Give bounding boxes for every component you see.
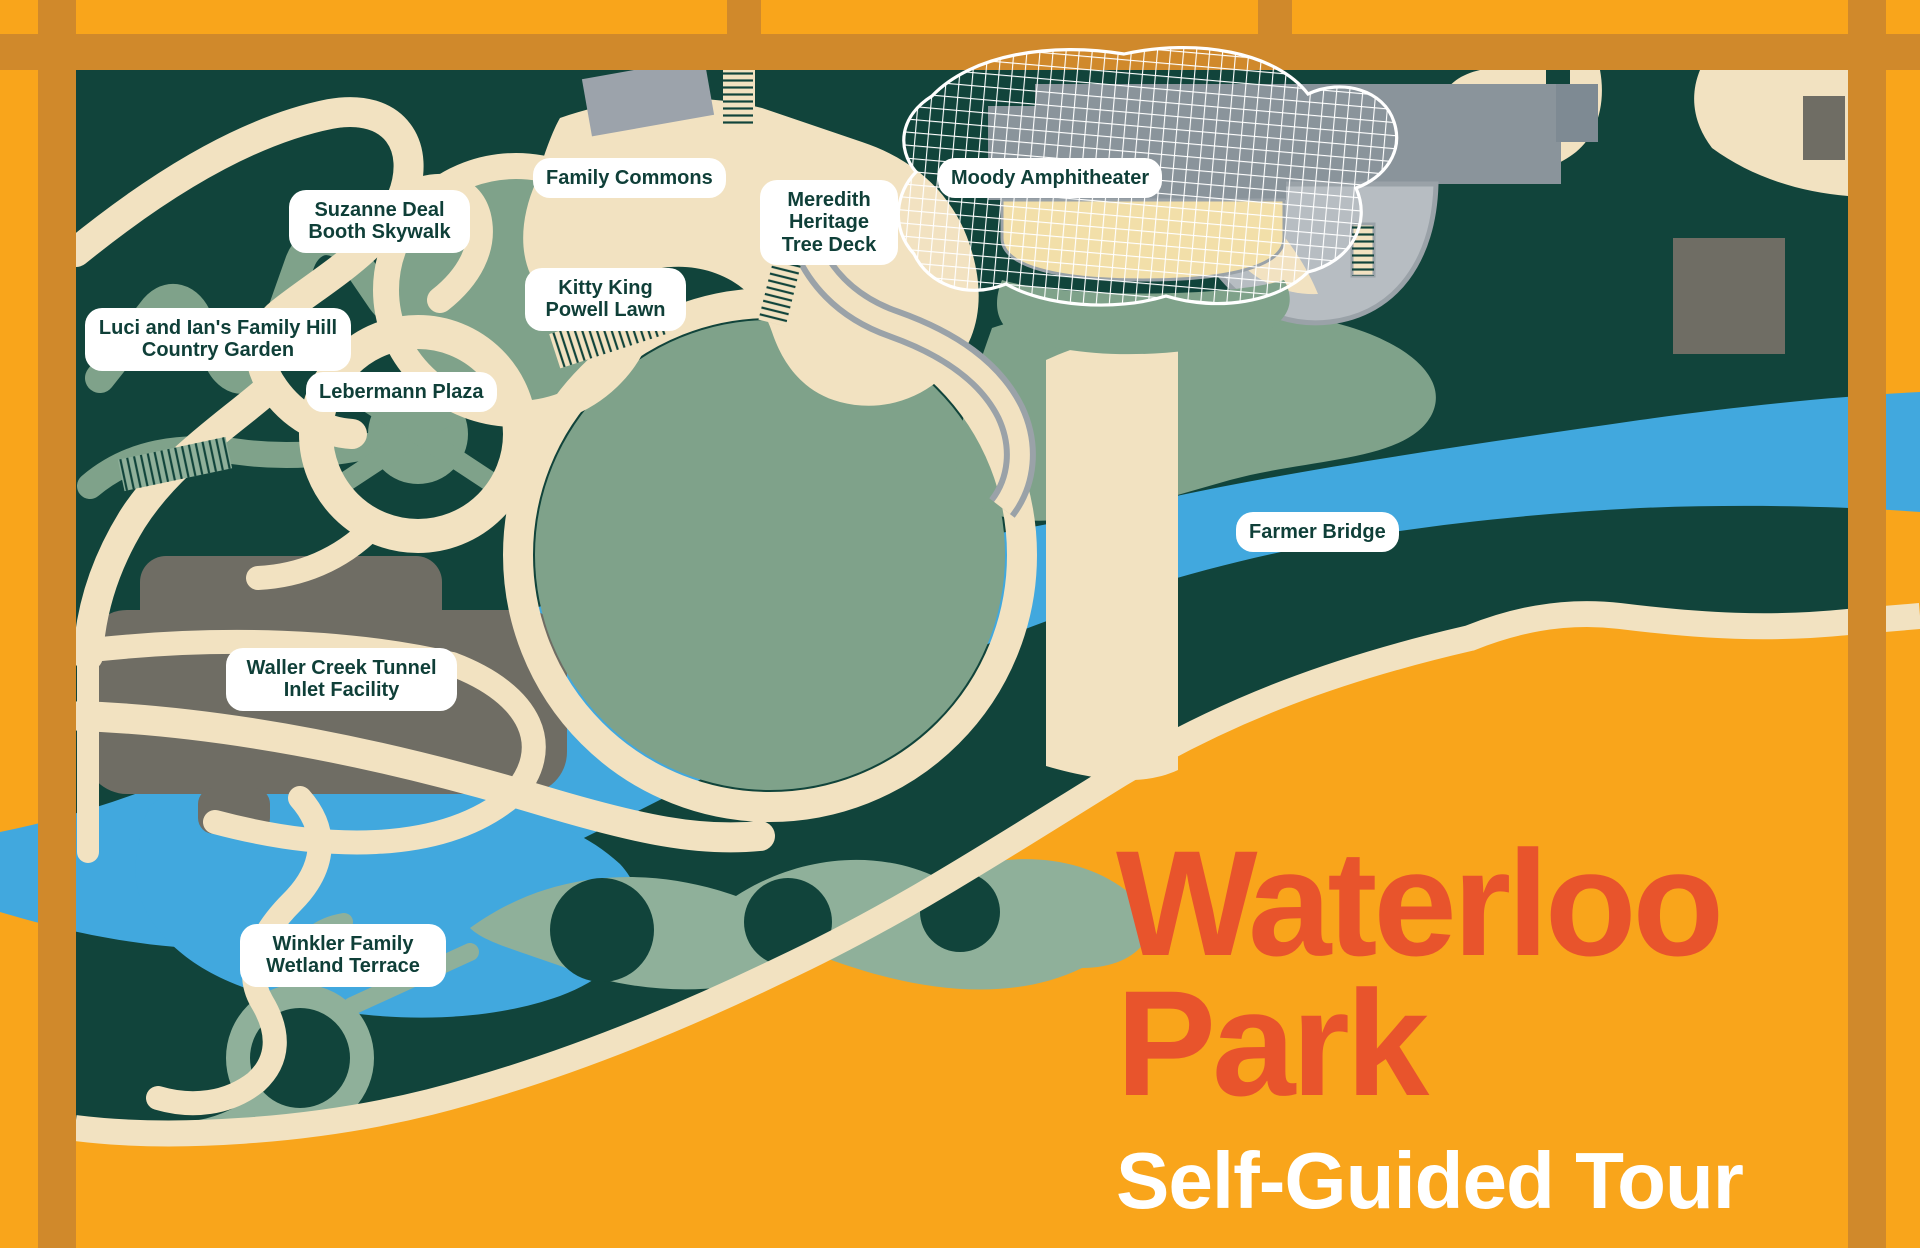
poster-subtitle: Self-Guided Tour xyxy=(1116,1141,1743,1221)
west-street xyxy=(38,0,76,1248)
north-cross-street-a xyxy=(727,0,761,34)
map-label-lebermann-plaza: Lebermann Plaza xyxy=(306,372,497,412)
map-label-suzanne-deal-booth-skywalk: Suzanne Deal Booth Skywalk xyxy=(289,190,470,253)
east-street xyxy=(1848,0,1886,1248)
poster-title-block: WaterlooPark Self-Guided Tour xyxy=(1116,834,1743,1221)
map-label-family-commons: Family Commons xyxy=(533,158,726,198)
north-street xyxy=(0,34,1920,70)
waterloo-park-map-poster: Suzanne Deal Booth Skywalk Family Common… xyxy=(0,0,1920,1248)
north-cross-street-b xyxy=(1258,0,1292,34)
map-label-farmer-bridge: Farmer Bridge xyxy=(1236,512,1399,552)
map-label-meredith-heritage-tree-deck: Meredith Heritage Tree Deck xyxy=(760,180,898,265)
building-far-northeast xyxy=(1803,96,1845,160)
building-northeast xyxy=(1556,84,1598,142)
map-label-kitty-king-powell-lawn: Kitty King Powell Lawn xyxy=(525,268,686,331)
map-label-luci-ians-family-hill-country-garden: Luci and Ian's Family Hill Country Garde… xyxy=(85,308,351,371)
map-label-waller-creek-tunnel-inlet-facility: Waller Creek Tunnel Inlet Facility xyxy=(226,648,457,711)
poster-title: WaterlooPark xyxy=(1116,834,1743,1113)
map-label-moody-amphitheater: Moody Amphitheater xyxy=(938,158,1162,198)
farmer-bridge-path xyxy=(1046,337,1178,780)
map-label-winkler-family-wetland-terrace: Winkler Family Wetland Terrace xyxy=(240,924,446,987)
building-east xyxy=(1673,238,1785,354)
north-entry-stairs xyxy=(723,66,753,124)
